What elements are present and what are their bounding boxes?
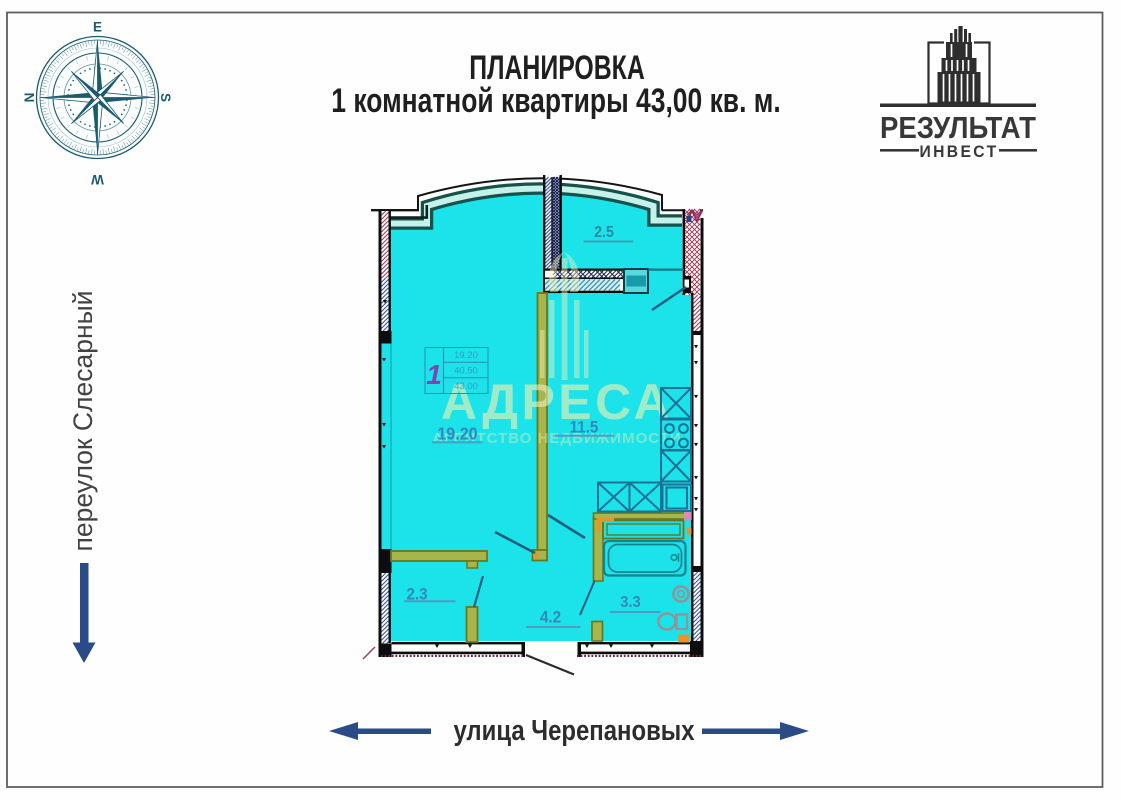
- svg-text:ИНВЕСТ: ИНВЕСТ: [919, 143, 998, 161]
- svg-text:4.2: 4.2: [540, 609, 561, 627]
- svg-text:1: 1: [426, 359, 442, 390]
- svg-text:19.20: 19.20: [454, 350, 478, 361]
- svg-text:43.00: 43.00: [454, 381, 478, 392]
- svg-text:S: S: [158, 93, 173, 102]
- svg-text:N: N: [22, 93, 37, 103]
- svg-text:W: W: [91, 172, 104, 187]
- svg-text:40.50: 40.50: [454, 365, 478, 376]
- svg-text:1 комнатной квартиры 43,00 кв.: 1 комнатной квартиры 43,00 кв. м.: [331, 81, 780, 120]
- svg-text:РЕЗУЛЬТАТ: РЕЗУЛЬТАТ: [880, 111, 1036, 146]
- svg-text:19.20: 19.20: [437, 424, 477, 444]
- svg-text:3.3: 3.3: [620, 593, 640, 611]
- svg-text:улица Черепановых: улица Черепановых: [453, 714, 694, 746]
- svg-text:11.5: 11.5: [570, 419, 599, 437]
- svg-text:2.5: 2.5: [594, 225, 614, 242]
- svg-text:E: E: [93, 20, 102, 35]
- svg-text:переулок Слесарный: переулок Слесарный: [68, 291, 98, 552]
